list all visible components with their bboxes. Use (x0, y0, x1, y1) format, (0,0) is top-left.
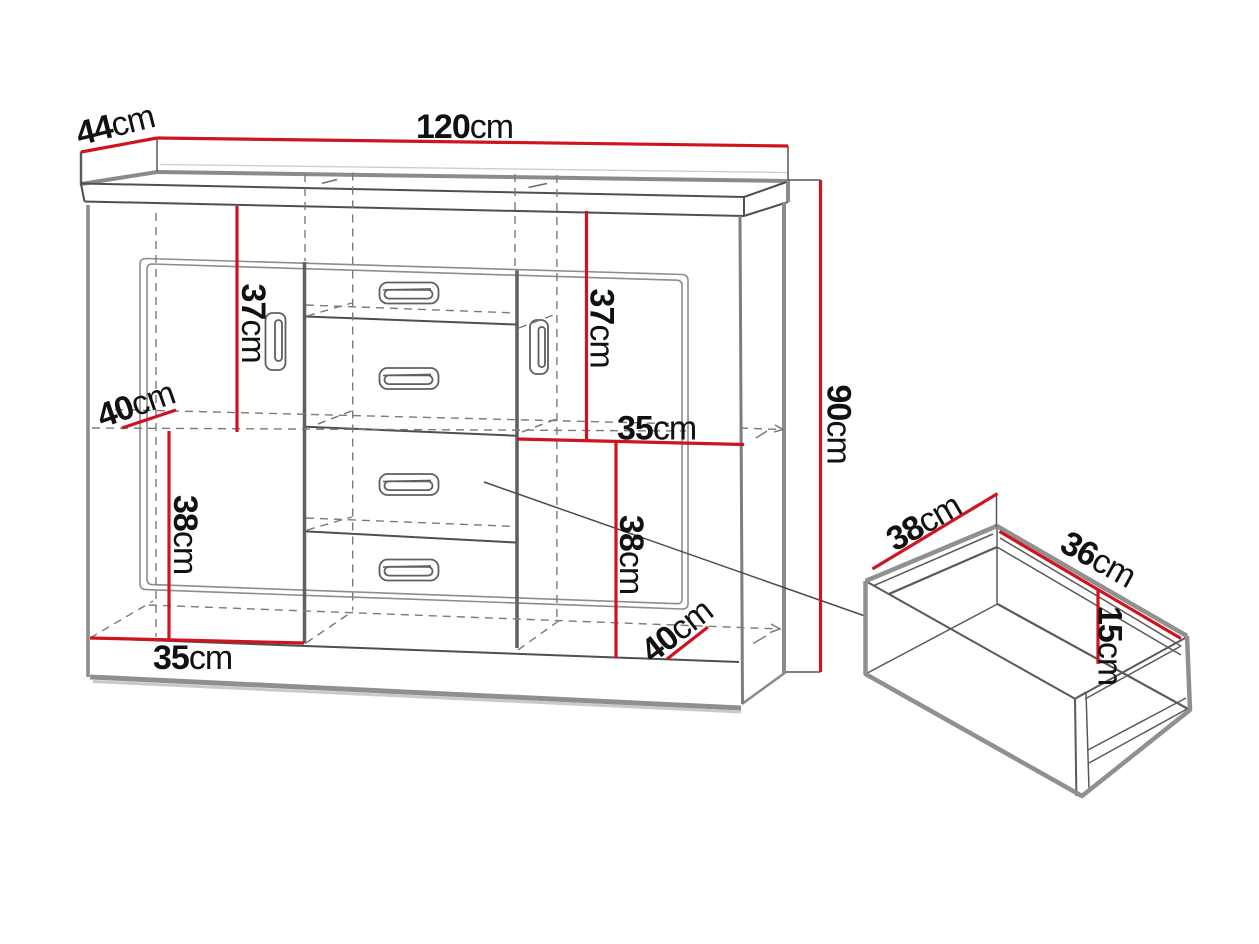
svg-text:120cm: 120cm (416, 108, 513, 146)
svg-text:15cm: 15cm (1091, 606, 1129, 685)
svg-text:40cm: 40cm (92, 374, 179, 436)
svg-text:35cm: 35cm (153, 639, 232, 677)
svg-text:38cm: 38cm (166, 495, 204, 574)
svg-text:37cm: 37cm (234, 284, 272, 363)
svg-text:90cm: 90cm (820, 385, 858, 464)
svg-text:35cm: 35cm (617, 410, 696, 448)
svg-text:38cm: 38cm (880, 486, 968, 558)
svg-text:38cm: 38cm (612, 515, 650, 594)
svg-text:37cm: 37cm (583, 289, 621, 368)
